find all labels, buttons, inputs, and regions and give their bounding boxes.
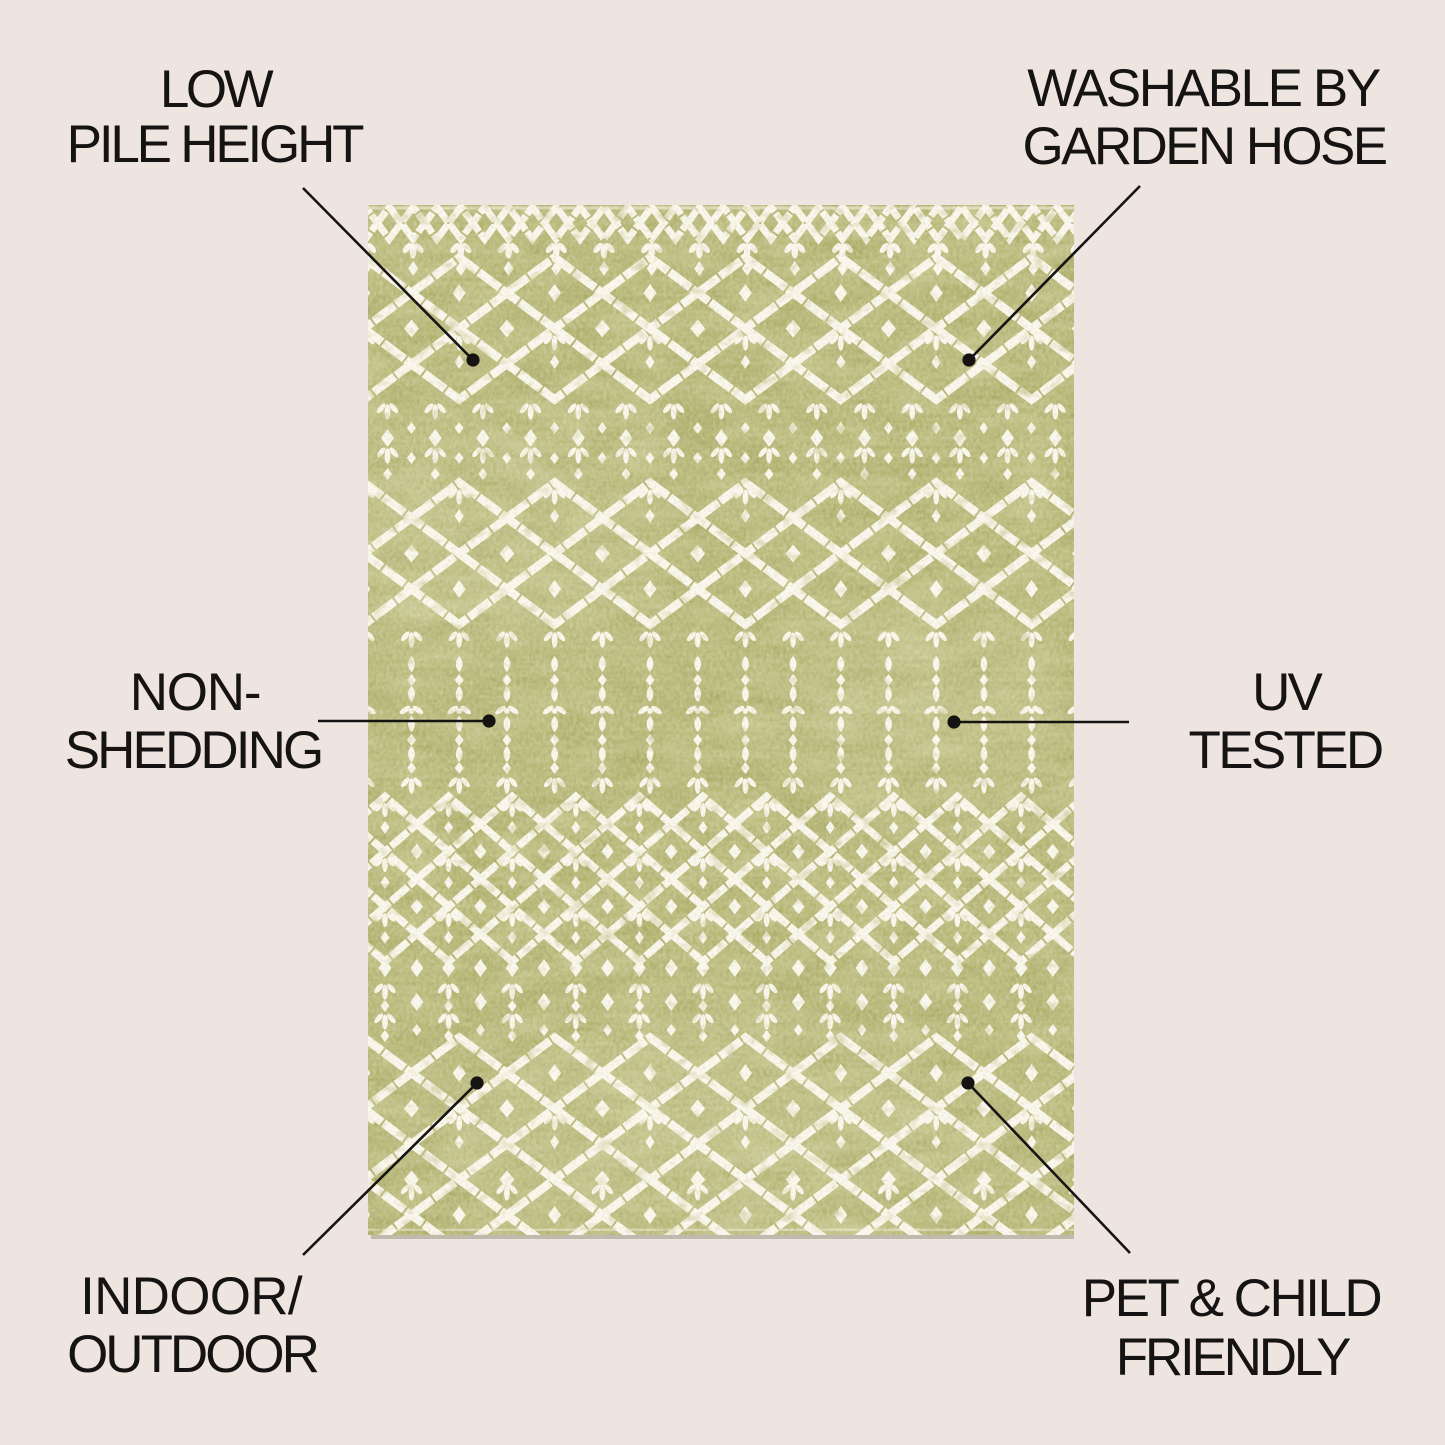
- svg-text:PET & CHILD: PET & CHILD: [1082, 1269, 1381, 1328]
- svg-text:FRIENDLY: FRIENDLY: [1116, 1328, 1351, 1387]
- svg-text:SHEDDING: SHEDDING: [65, 721, 322, 780]
- svg-text:TESTED: TESTED: [1189, 721, 1382, 780]
- svg-text:OUTDOOR: OUTDOOR: [67, 1325, 318, 1384]
- svg-text:UV: UV: [1252, 663, 1323, 722]
- svg-text:LOW: LOW: [160, 60, 274, 119]
- svg-text:PILE HEIGHT: PILE HEIGHT: [67, 115, 364, 174]
- svg-text:INDOOR/: INDOOR/: [80, 1267, 303, 1326]
- svg-text:GARDEN HOSE: GARDEN HOSE: [1022, 117, 1386, 176]
- svg-text:WASHABLE BY: WASHABLE BY: [1027, 59, 1381, 118]
- svg-text:NON-: NON-: [130, 663, 261, 722]
